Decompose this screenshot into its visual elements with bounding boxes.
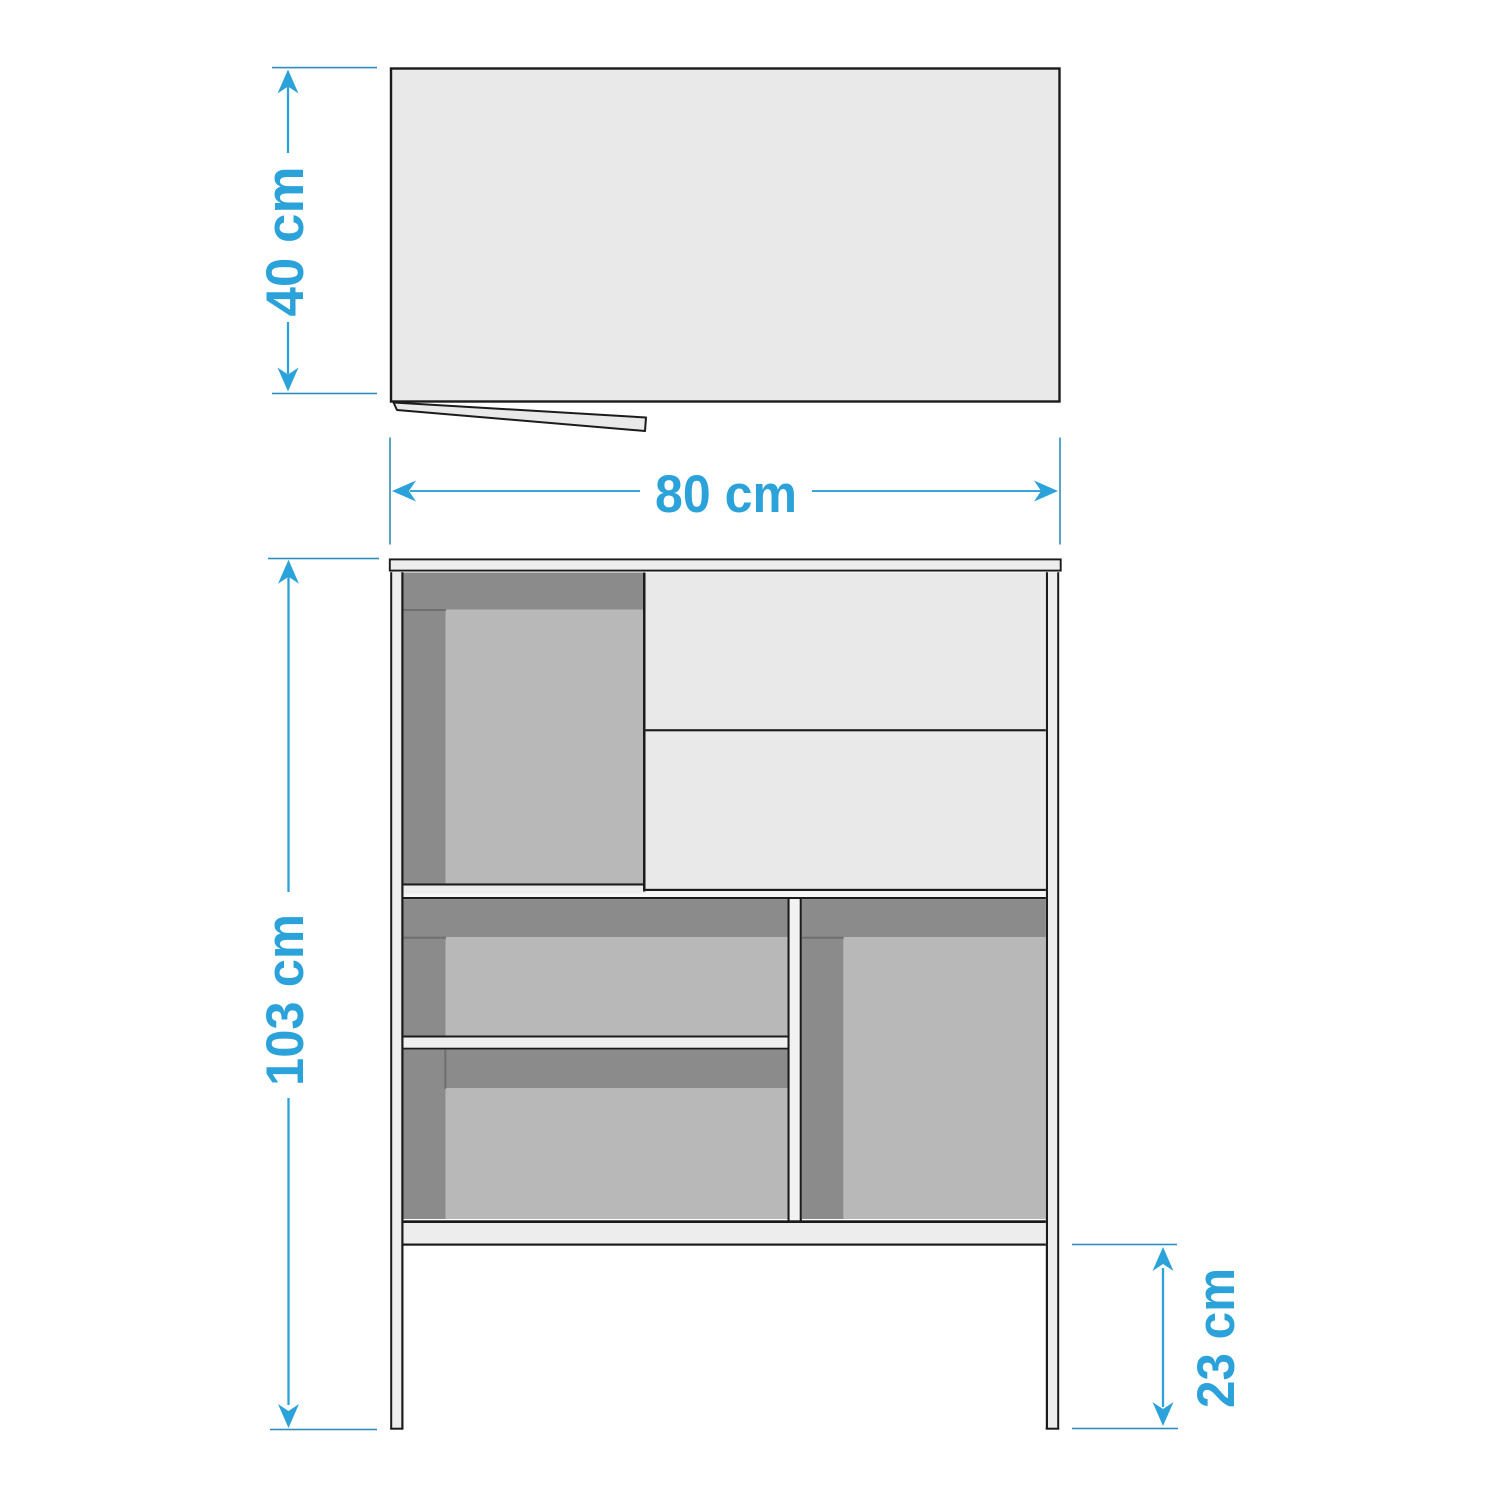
svg-text:103 cm: 103 cm bbox=[256, 914, 315, 1086]
svg-text:23 cm: 23 cm bbox=[1187, 1268, 1246, 1408]
svg-text:80 cm: 80 cm bbox=[655, 465, 797, 524]
svg-text:40 cm: 40 cm bbox=[256, 167, 315, 317]
